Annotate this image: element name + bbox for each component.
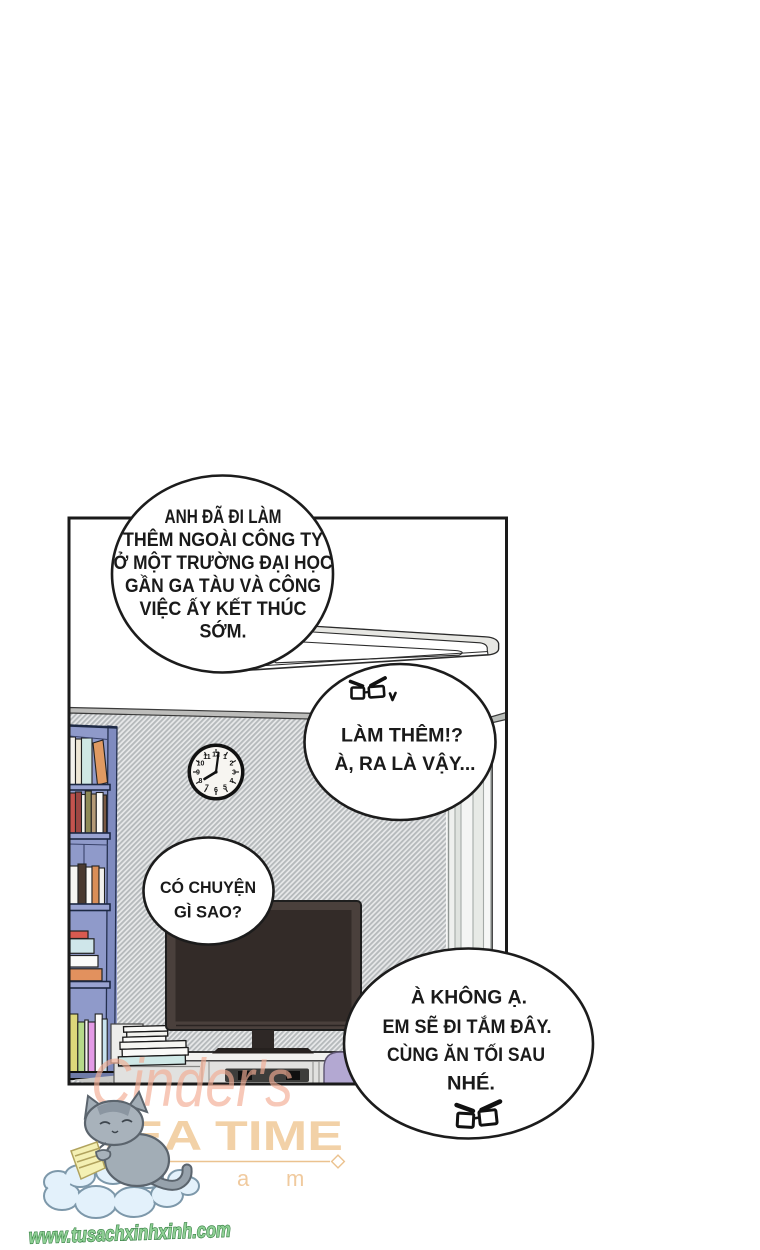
svg-text:THÊM NGOÀI CÔNG TY: THÊM NGOÀI CÔNG TY xyxy=(123,529,323,551)
svg-text:1: 1 xyxy=(223,754,227,761)
svg-text:4: 4 xyxy=(230,778,234,785)
svg-text:9: 9 xyxy=(196,770,200,777)
svg-text:VIỆC ẤY KẾT THÚC: VIỆC ẤY KẾT THÚC xyxy=(140,598,307,620)
svg-text:NHÉ.: NHÉ. xyxy=(447,1072,495,1095)
svg-text:m: m xyxy=(286,1166,304,1191)
svg-text:CÓ CHUYỆN: CÓ CHUYỆN xyxy=(160,878,256,897)
svg-text:6: 6 xyxy=(214,787,218,794)
svg-text:À, RA LÀ VẬY...: À, RA LÀ VẬY... xyxy=(335,753,476,775)
svg-text:10: 10 xyxy=(197,761,205,768)
svg-text:SỚM.: SỚM. xyxy=(200,621,247,643)
svg-text:3: 3 xyxy=(232,770,236,777)
svg-text:EM SẼ ĐI TẮM ĐÂY.: EM SẼ ĐI TẮM ĐÂY. xyxy=(383,1014,552,1038)
svg-text:7: 7 xyxy=(205,785,209,792)
svg-text:8: 8 xyxy=(199,778,203,785)
svg-text:5: 5 xyxy=(223,785,227,792)
svg-text:2: 2 xyxy=(230,761,234,768)
svg-text:GÌ SAO?: GÌ SAO? xyxy=(174,903,242,922)
svg-text:a: a xyxy=(237,1166,250,1191)
svg-text:À KHÔNG Ạ.: À KHÔNG Ạ. xyxy=(411,985,527,1009)
svg-text:LÀM THÊM!?: LÀM THÊM!? xyxy=(341,725,463,747)
svg-text:11: 11 xyxy=(203,754,211,761)
svg-text:GẦN GA TÀU VÀ CÔNG: GẦN GA TÀU VÀ CÔNG xyxy=(125,575,321,597)
svg-text:ANH ĐÃ ĐI LÀM: ANH ĐÃ ĐI LÀM xyxy=(165,506,282,528)
svg-text:Ở MỘT TRƯỜNG ĐẠI HỌC: Ở MỘT TRƯỜNG ĐẠI HỌC xyxy=(114,552,333,574)
svg-text:CÙNG ĂN TỐI SAU: CÙNG ĂN TỐI SAU xyxy=(387,1042,545,1066)
